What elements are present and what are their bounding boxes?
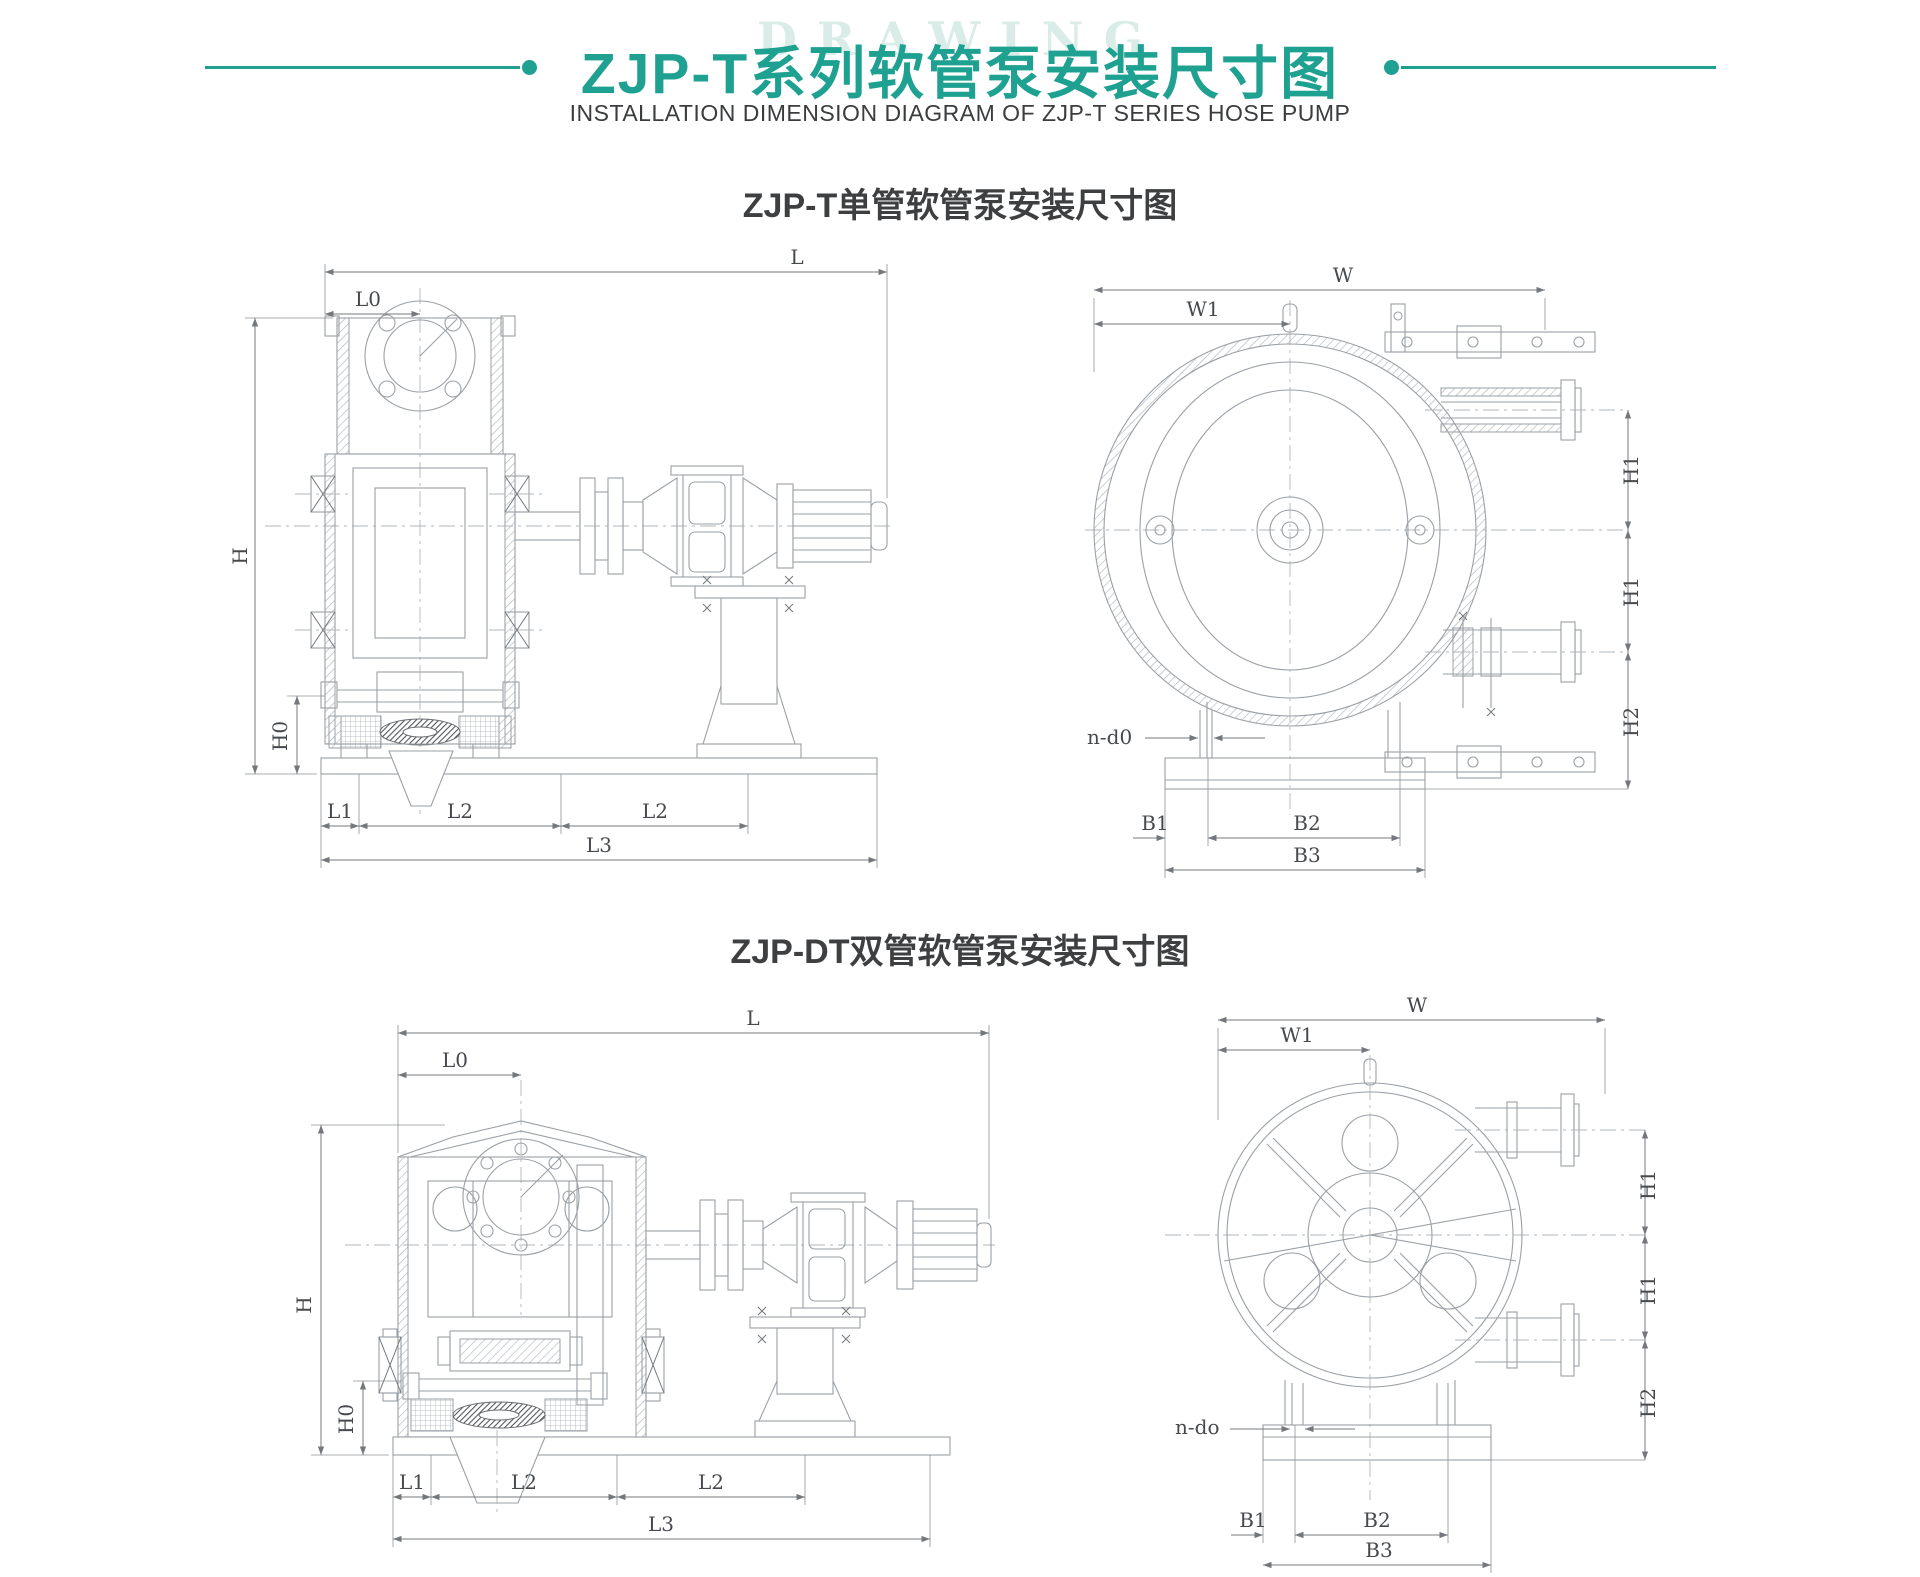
pump-front-geometry	[1165, 1055, 1645, 1500]
dim-label-L3: L3	[648, 1512, 674, 1536]
pump-side-geometry	[345, 1080, 995, 1513]
dim-label-nd0: n-d0	[1087, 725, 1132, 749]
pedestal-base	[1263, 1380, 1491, 1460]
double-pump-front-view-drawing: W W1 H1 H1 H2 n-do B1 B2 B3	[985, 995, 1695, 1577]
section-title-double-pump: ZJP-DT双管软管泵安装尺寸图	[0, 924, 1920, 973]
dim-label-L2b: L2	[642, 799, 668, 823]
dim-label-L1: L1	[327, 799, 353, 823]
double-pump-side-view-drawing: L L0 H H0 L1 L2 L2 L3	[245, 985, 1005, 1577]
support-pedestal	[750, 1307, 860, 1437]
lower-mounting-rail	[1385, 746, 1595, 778]
dim-label-B3: B3	[1293, 843, 1320, 867]
dim-label-L3: L3	[586, 833, 612, 857]
dim-label-W: W	[1407, 995, 1428, 1017]
dim-label-L: L	[790, 245, 803, 269]
dim-label-H1b: H1	[1636, 1275, 1660, 1305]
dim-label-L1: L1	[399, 1470, 425, 1494]
section-title-single-pump: ZJP-T单管软管泵安装尺寸图	[0, 178, 1920, 227]
dim-label-W1: W1	[1280, 1023, 1313, 1047]
dim-label-B1: B1	[1239, 1508, 1266, 1532]
dim-label-H0: H0	[268, 721, 292, 751]
single-pump-side-view-drawing: L L0 H H0 L1 L2 L2 L3	[225, 226, 915, 876]
hose-section	[329, 716, 511, 748]
dim-label-L2a: L2	[447, 799, 473, 823]
dim-label-L0: L0	[442, 1048, 468, 1072]
dim-label-H0: H0	[334, 1404, 358, 1434]
dim-label-B2: B2	[1293, 811, 1320, 835]
hose-roller	[403, 1331, 607, 1399]
single-pump-front-view-drawing: W W1 H1 H1 H2 n-d0 B1 B2 B3	[1085, 240, 1705, 900]
dim-label-B3: B3	[1365, 1538, 1392, 1562]
hose-section	[411, 1399, 587, 1431]
title-divider-right	[1401, 66, 1716, 69]
dim-label-B2: B2	[1363, 1508, 1390, 1532]
upper-port-flange	[1425, 380, 1628, 440]
page-title: ZJP-T系列软管泵安装尺寸图	[0, 28, 1920, 110]
page-subtitle: INSTALLATION DIMENSION DIAGRAM OF ZJP-T …	[0, 100, 1920, 127]
dim-label-L0: L0	[355, 287, 381, 311]
dim-label-B1: B1	[1141, 811, 1168, 835]
lower-port-flange	[1425, 612, 1628, 716]
support-pedestal	[695, 576, 805, 758]
pump-side-geometry	[265, 288, 893, 814]
upper-port-flange	[1455, 1094, 1645, 1166]
dim-label-H1b: H1	[1619, 577, 1643, 607]
dim-label-H2: H2	[1636, 1388, 1660, 1418]
dim-label-L2b: L2	[698, 1470, 724, 1494]
dim-label-W1: W1	[1186, 297, 1219, 321]
upper-mounting-rail	[1385, 304, 1595, 358]
dim-label-ndo: n-do	[1175, 1415, 1219, 1439]
discharge-funnel	[389, 751, 453, 806]
dim-label-H1a: H1	[1619, 455, 1643, 485]
dim-label-L: L	[746, 1006, 759, 1030]
lower-port-flange	[1455, 1304, 1645, 1376]
page: DRAWING ZJP-T系列软管泵安装尺寸图 INSTALLATION DIM…	[0, 0, 1920, 1577]
dim-label-H: H	[292, 1296, 316, 1313]
title-divider-right-dot	[1384, 60, 1399, 75]
dim-label-H1a: H1	[1636, 1170, 1660, 1200]
pedestal-base	[1165, 702, 1425, 789]
dim-label-W: W	[1333, 263, 1354, 287]
dim-label-L2a: L2	[511, 1470, 537, 1494]
dim-label-H: H	[228, 547, 252, 564]
dim-label-H2: H2	[1619, 707, 1643, 737]
pump-front-dimensions: W W1 H1 H1 H2 n-do B1 B2 B3	[1175, 995, 1660, 1573]
drive-train	[646, 1193, 991, 1317]
